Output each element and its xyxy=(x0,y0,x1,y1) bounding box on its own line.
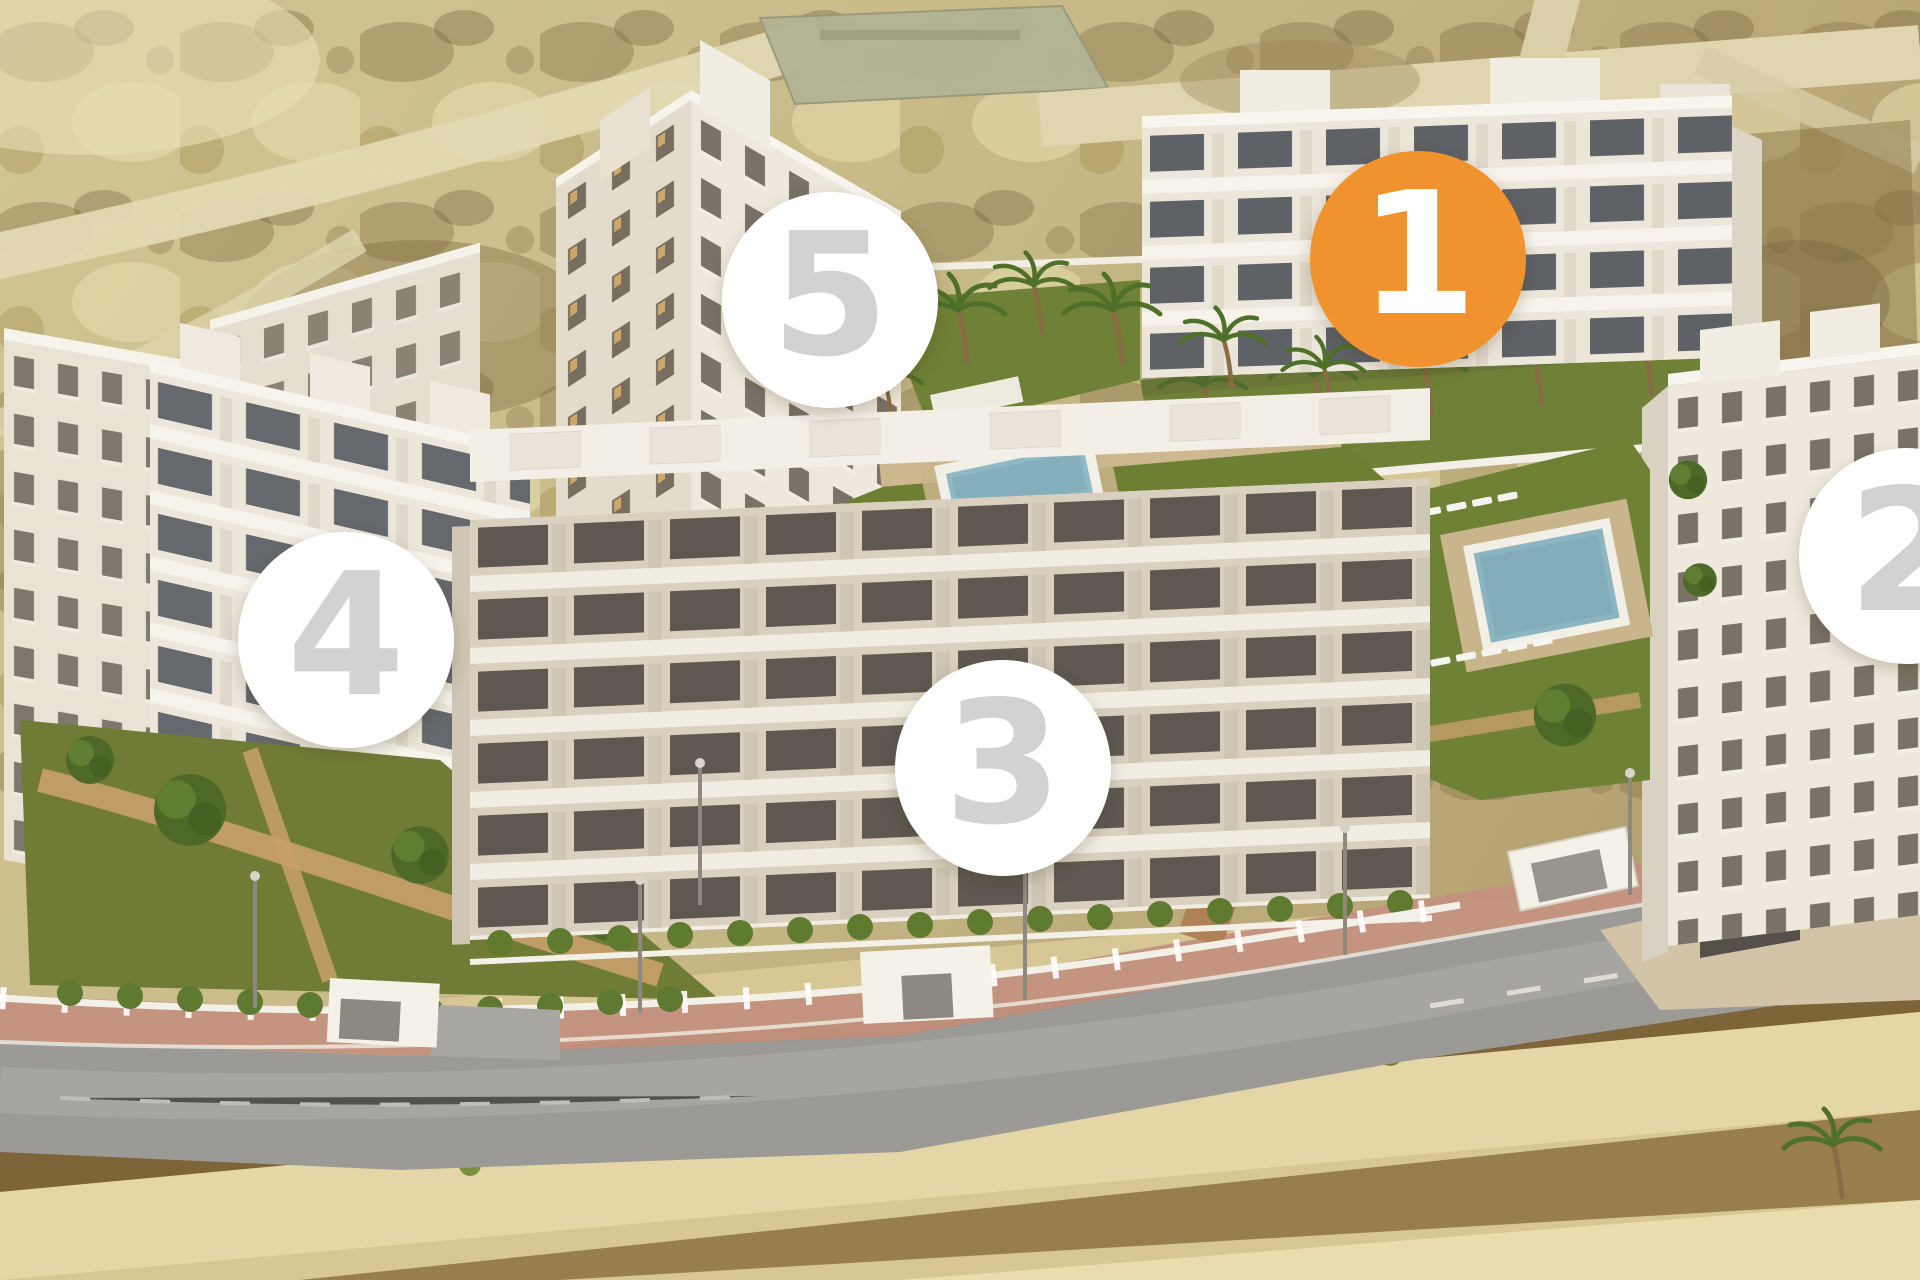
building-marker-1-label: 1 xyxy=(1359,170,1477,340)
aerial-view-stage: 1 2 3 4 5 xyxy=(0,0,1920,1280)
building-marker-5[interactable]: 5 xyxy=(722,192,938,408)
building-marker-1[interactable]: 1 xyxy=(1310,151,1526,367)
building-marker-2-label: 2 xyxy=(1848,467,1920,637)
building-marker-3-label: 3 xyxy=(944,679,1062,849)
building-marker-3[interactable]: 3 xyxy=(895,660,1111,876)
building-marker-4[interactable]: 4 xyxy=(238,532,454,748)
building-marker-5-label: 5 xyxy=(771,211,889,381)
building-marker-4-label: 4 xyxy=(287,551,405,721)
